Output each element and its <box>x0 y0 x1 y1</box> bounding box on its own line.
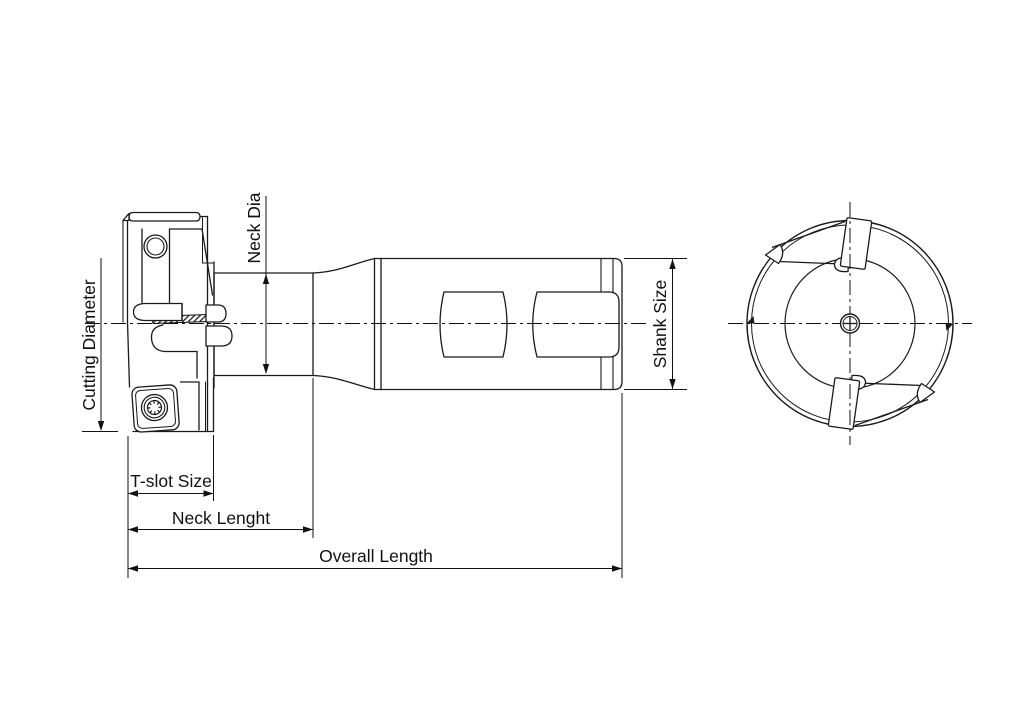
neck-length-label: Neck Lenght <box>172 508 270 528</box>
neck-dia-label: Neck Dia <box>244 192 264 263</box>
clamp-screw-icon <box>147 238 164 255</box>
t-slot-cutter-drawing: Cutting Diameter Neck Dia Shank Size T-s… <box>0 0 1024 724</box>
pocket-tab-upper <box>206 305 226 322</box>
dim-t-slot-size <box>128 490 214 496</box>
center-screw-icon <box>841 314 860 333</box>
top-corner-wedge <box>123 214 129 221</box>
cutting-diameter-label: Cutting Diameter <box>79 279 99 410</box>
upper-insert-profile <box>134 304 183 321</box>
t-slot-size-label: T-slot Size <box>130 471 212 491</box>
shank-flat-rear <box>533 292 619 357</box>
overall-length-label: Overall Length <box>319 546 433 566</box>
shank-flat-front <box>440 292 507 357</box>
pocket-tab-lower <box>206 326 232 346</box>
top-insert-edge <box>129 213 200 222</box>
shank-size-label: Shank Size <box>650 280 670 369</box>
dim-overall-length <box>128 565 622 571</box>
technical-drawing-canvas: Cutting Diameter Neck Dia Shank Size T-s… <box>0 0 1024 724</box>
side-view <box>123 213 622 433</box>
lower-insert <box>132 384 180 432</box>
